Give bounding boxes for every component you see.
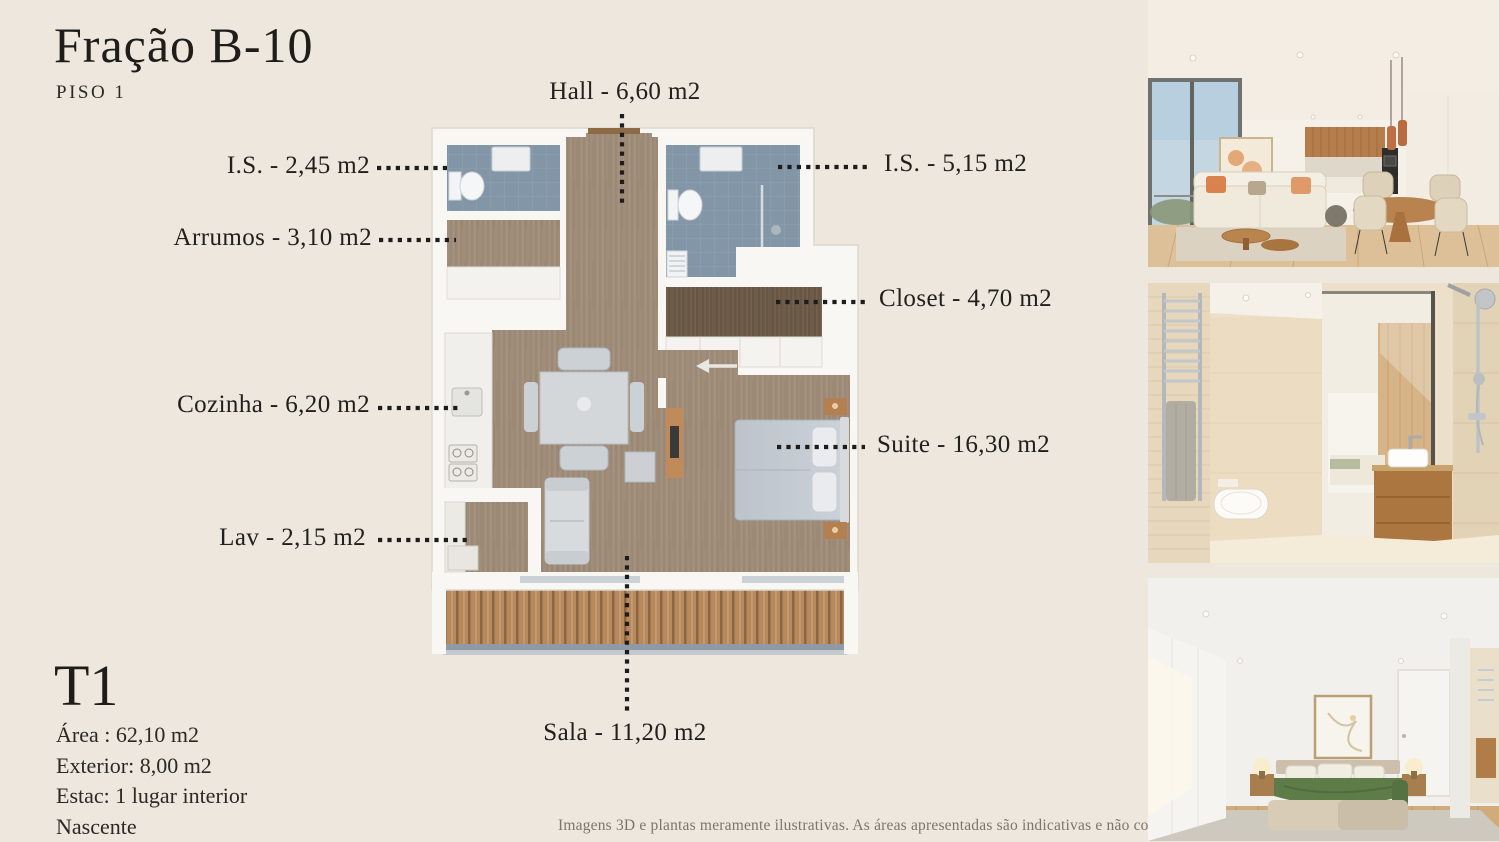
leader-lines	[377, 114, 869, 712]
unit-area: Área : 62,10 m2	[56, 720, 247, 751]
window-suite	[742, 576, 844, 583]
room-label-cozinha: Cozinha - 6,20 m2	[150, 391, 370, 419]
room-sala	[497, 348, 720, 572]
room-is-left	[447, 145, 560, 211]
unit-orientation: Nascente	[56, 812, 247, 842]
balcony	[443, 586, 847, 655]
shower	[1448, 283, 1499, 563]
room-cozinha	[445, 330, 566, 493]
unit-typology: T1	[54, 652, 118, 719]
room-is-right	[666, 145, 800, 277]
room-lav	[437, 488, 541, 572]
unit-exterior: Exterior: 8,00 m2	[56, 751, 247, 782]
hall-doorway	[1450, 638, 1499, 818]
room-label-lav: Lav - 2,15 m2	[150, 524, 366, 552]
room-hall	[566, 137, 658, 410]
room-label-hall: Hall - 6,60 m2	[549, 78, 700, 106]
room-label-closet: Closet - 4,70 m2	[879, 285, 1052, 313]
wardrobe	[1148, 628, 1226, 841]
page-title: Fração B-10	[54, 16, 314, 74]
room-label-is-left: I.S. - 2,45 m2	[150, 152, 370, 180]
brochure-page: Fração B-10 PISO 1 Hall - 6,60 m2 I.S. -…	[0, 0, 1499, 841]
page-subtitle: PISO 1	[56, 82, 126, 104]
room-label-arrumos: Arrumos - 3,10 m2	[150, 224, 372, 252]
bedroom-photo	[1148, 578, 1499, 841]
disclaimer-text: Imagens 3D e plantas meramente ilustrati…	[558, 817, 1208, 835]
bathroom-photo	[1148, 283, 1499, 563]
unit-details: Área : 62,10 m2 Exterior: 8,00 m2 Estac:…	[56, 720, 247, 842]
sofa	[1194, 172, 1326, 228]
window-sala	[520, 576, 640, 583]
room-label-sala: Sala - 11,20 m2	[543, 719, 706, 747]
room-suite	[666, 375, 850, 572]
entrance-door	[588, 128, 640, 134]
suite-entry-arrow	[696, 359, 737, 373]
unit-parking: Estac: 1 lugar interior	[56, 781, 247, 812]
wall-art	[1315, 696, 1371, 758]
living-room-photo	[1148, 0, 1499, 267]
room-arrumos	[447, 220, 560, 299]
room-label-is-right: I.S. - 5,15 m2	[884, 150, 1027, 178]
bed	[1250, 758, 1426, 830]
room-closet	[666, 287, 822, 367]
entrance-threshold	[586, 133, 652, 149]
room-label-suite: Suite - 16,30 m2	[877, 431, 1050, 459]
